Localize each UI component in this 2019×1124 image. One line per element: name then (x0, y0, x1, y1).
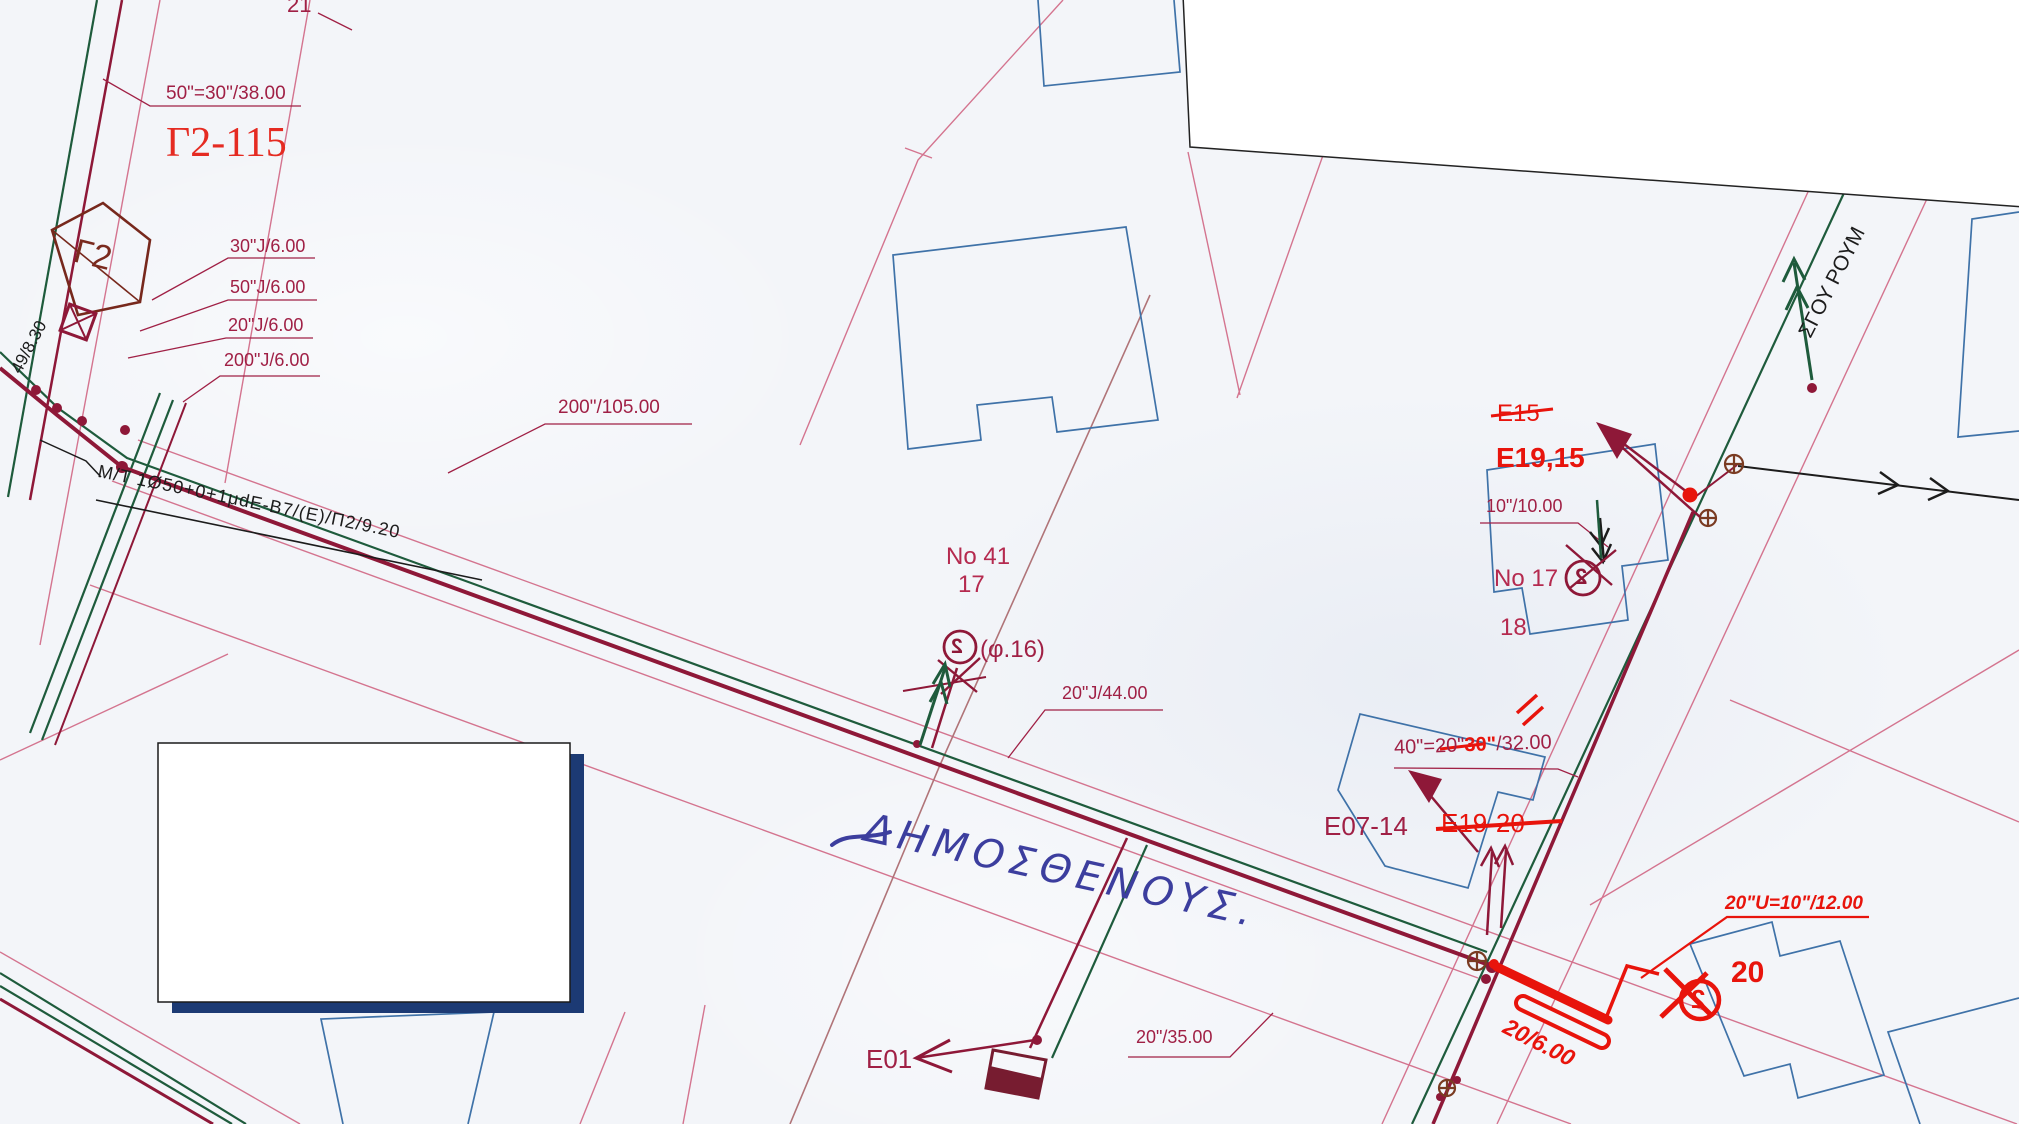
label-duct-40-resize: 40"=20"30"/32.00 (1394, 732, 1552, 757)
mt-leader (40, 440, 101, 477)
label-duct-40-len: /32.00 (1496, 731, 1552, 755)
node-dot (52, 403, 62, 413)
building-outline (1958, 212, 2019, 437)
label-joint-200: 200"J/6.00 (224, 351, 309, 369)
node-dot (1481, 974, 1491, 984)
label-duct-50-30: 50"=30"/38.00 (166, 84, 286, 103)
manhole-icon (1439, 1080, 1455, 1096)
label-cabinet-gamma2: Γ2 (70, 234, 115, 276)
parcel-line (1730, 700, 2019, 822)
label-duct-40-old: 20" (1435, 734, 1465, 757)
leader (448, 424, 692, 473)
dp-glyph: 2 (951, 636, 963, 657)
e01-flag-icon (986, 1050, 1046, 1098)
label-house-no-41: No 41 (946, 545, 1010, 569)
leader (183, 376, 320, 402)
label-house-no-17: No 17 (1494, 567, 1558, 591)
up-arrow-chevron (1786, 287, 1808, 310)
label-dp-e19-15: E19,15 (1496, 444, 1585, 472)
label-parcel-21: 21 (287, 0, 311, 16)
red-step-line (1606, 966, 1659, 1018)
leader (318, 13, 352, 30)
building-outline (1888, 998, 2019, 1124)
manhole-icon (1700, 510, 1716, 526)
label-joint-30: 30"J/6.00 (230, 237, 305, 255)
dp-glyph: 2 (1691, 986, 1705, 1012)
parcel-line (1188, 152, 1240, 395)
green-arrows (920, 259, 1812, 745)
arrow-head (1596, 422, 1632, 459)
label-parcel-18: 18 (1500, 616, 1527, 640)
label-joint-50: 50"J/6.00 (230, 278, 305, 296)
node-dot (120, 425, 130, 435)
label-cabinet-id: Γ2-115 (166, 122, 287, 164)
building-outline (1038, 0, 1180, 86)
parcel-line (683, 1005, 705, 1124)
callout-box-center (158, 743, 570, 1002)
building-outline (321, 1012, 494, 1124)
label-duct-20-44: 20"J/44.00 (1062, 684, 1147, 702)
label-red-dp-20: 20 (1731, 958, 1764, 988)
label-dp-e15-old: E15 (1497, 402, 1540, 426)
label-duct-20-35: 20"/35.00 (1136, 1028, 1212, 1046)
label-duct-10-10: 10"/10.00 (1486, 497, 1562, 515)
building-outline (1690, 922, 1884, 1098)
dp-glyph: 2 (1575, 566, 1587, 588)
building-outline (893, 227, 1158, 449)
manhole-icon (1725, 455, 1743, 473)
label-dp-phi16: (φ.16) (980, 638, 1045, 662)
parcel-line (800, 0, 1063, 445)
label-duct-200-105: 200"/105.00 (558, 398, 660, 417)
leader (1480, 523, 1608, 547)
label-parcel-17: 17 (958, 573, 985, 597)
duct-line (0, 999, 213, 1124)
arrow-head (1408, 770, 1442, 803)
red-node-dot (1489, 959, 1499, 969)
label-joint-20: 20"J/6.00 (228, 316, 303, 334)
node-dot (1807, 383, 1817, 393)
leader (1008, 710, 1163, 758)
node-dot (77, 416, 87, 426)
callout-box-top-right (1183, 0, 2019, 207)
node-dot (31, 385, 41, 395)
maroon-arrows (916, 422, 1700, 1072)
label-dp-e01: E01 (866, 1046, 912, 1072)
label-duct-40-eq: 40"= (1394, 735, 1436, 758)
label-red-duct-note: 20"U=10"/12.00 (1725, 894, 1863, 913)
manhole-icon (1468, 952, 1486, 970)
label-dp-e07-14: E07-14 (1324, 813, 1408, 839)
label-duct-40-new: 30" (1464, 733, 1496, 756)
street-edge (1497, 188, 1932, 1124)
parcel-line (580, 1012, 625, 1124)
flag-fill (986, 1066, 1042, 1098)
map-canvas: 21 50"=30"/38.00 Γ2-115 30"J/6.00 50"J/6… (0, 0, 2019, 1124)
red-node-dot (1683, 488, 1698, 503)
parcel-line (1590, 650, 2019, 905)
label-dp-e19-20-old: E19-20 (1441, 810, 1525, 836)
cable-green (1412, 180, 1850, 1124)
red-tick (1517, 695, 1543, 725)
